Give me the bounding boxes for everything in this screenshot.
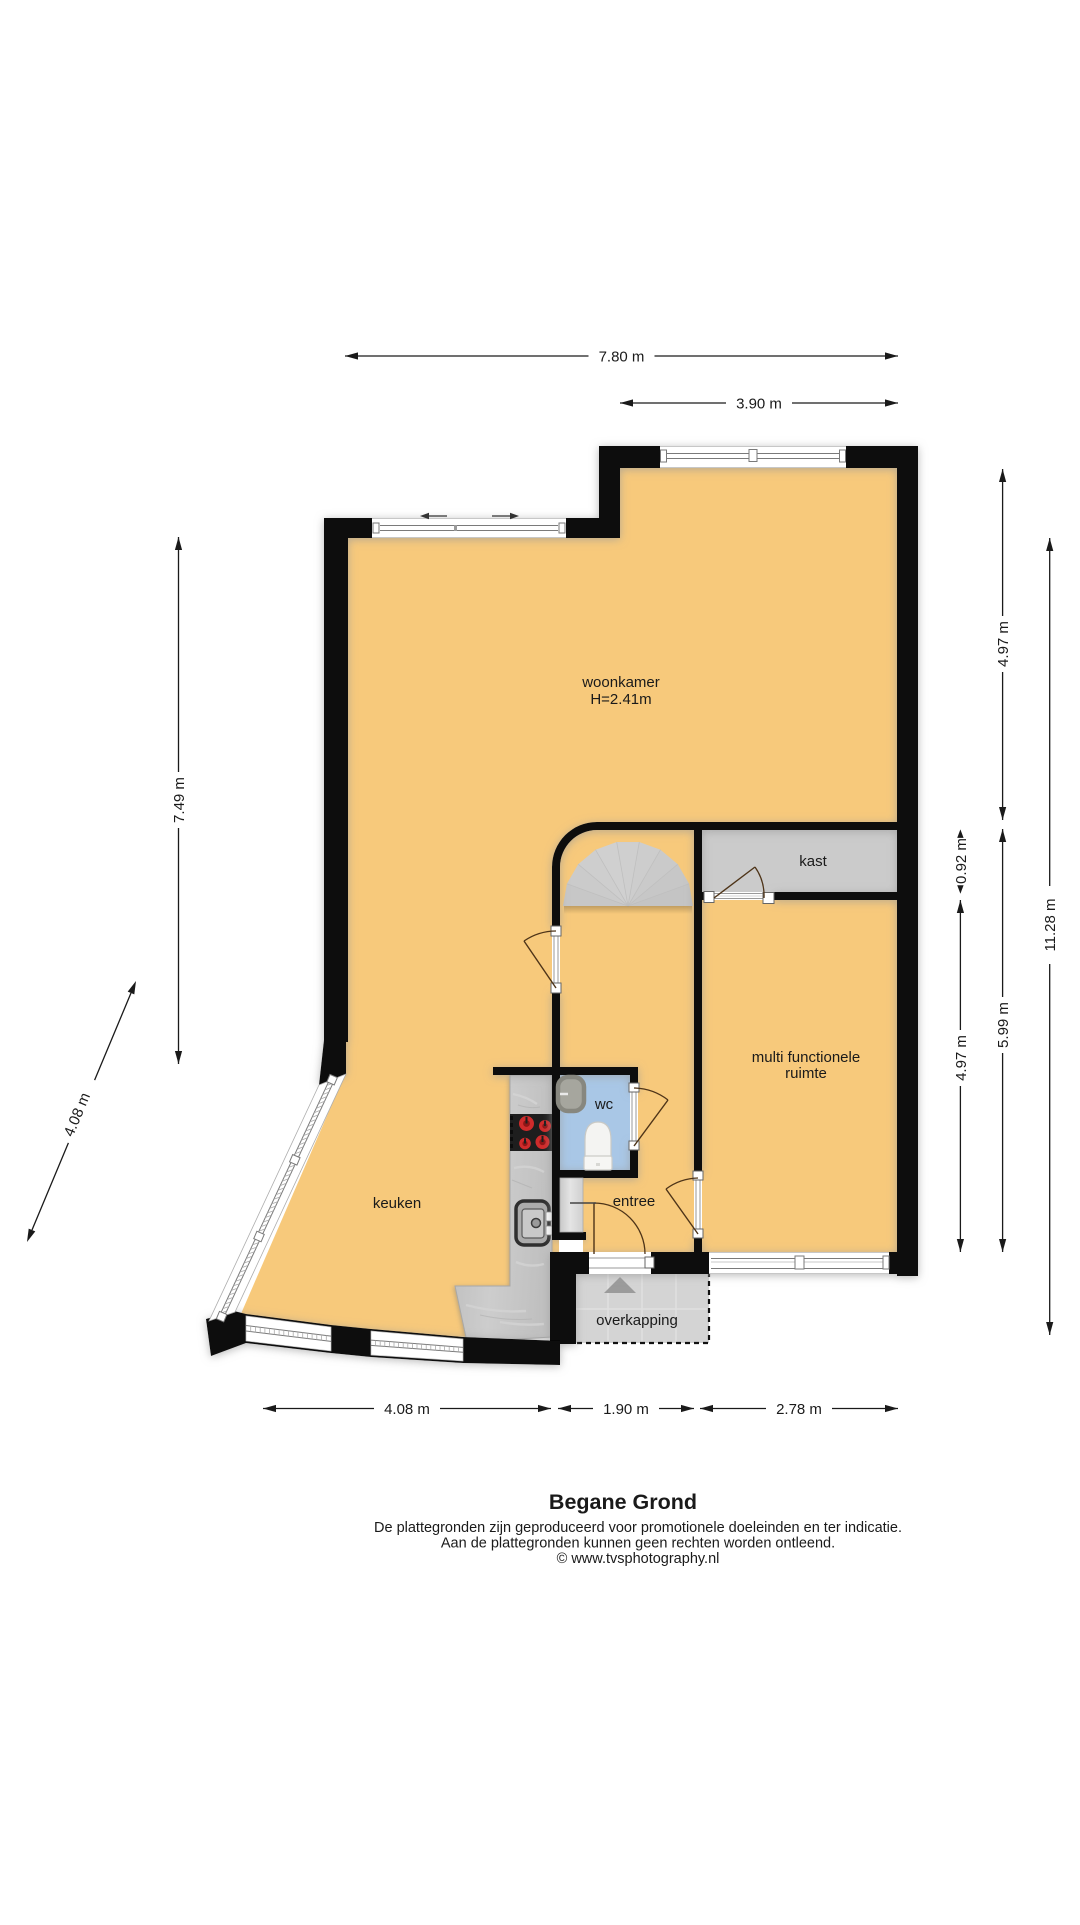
svg-text:7.49 m: 7.49 m [171, 777, 188, 823]
svg-text:entree: entree [613, 1193, 656, 1210]
svg-text:11.28 m: 11.28 m [1042, 898, 1059, 951]
svg-text:wc: wc [594, 1096, 614, 1113]
svg-text:4.97 m: 4.97 m [995, 621, 1012, 667]
svg-text:3.90 m: 3.90 m [736, 396, 782, 413]
svg-text:2.78 m: 2.78 m [776, 1401, 822, 1418]
svg-text:multi functionele: multi functionele [752, 1049, 860, 1066]
svg-text:0.92 m: 0.92 m [953, 838, 970, 884]
svg-text:overkapping: overkapping [596, 1312, 678, 1329]
svg-text:4.08 m: 4.08 m [384, 1401, 430, 1418]
svg-text:ruimte: ruimte [785, 1065, 827, 1082]
svg-text:Begane Grond: Begane Grond [549, 1490, 697, 1514]
svg-text:1.90 m: 1.90 m [603, 1401, 649, 1418]
svg-text:keuken: keuken [373, 1195, 421, 1212]
svg-text:© www.tvsphotography.nl: © www.tvsphotography.nl [557, 1551, 720, 1567]
svg-text:5.99 m: 5.99 m [995, 1002, 1012, 1048]
svg-text:De plattegronden zijn geproduc: De plattegronden zijn geproduceerd voor … [374, 1520, 902, 1536]
svg-text:woonkamer: woonkamer [581, 674, 660, 691]
svg-text:Aan de plattegronden kunnen ge: Aan de plattegronden kunnen geen rechten… [441, 1536, 835, 1552]
svg-text:kast: kast [799, 853, 827, 870]
svg-text:4.97 m: 4.97 m [953, 1035, 970, 1081]
svg-text:H=2.41m: H=2.41m [590, 691, 651, 708]
svg-text:7.80 m: 7.80 m [599, 349, 645, 366]
